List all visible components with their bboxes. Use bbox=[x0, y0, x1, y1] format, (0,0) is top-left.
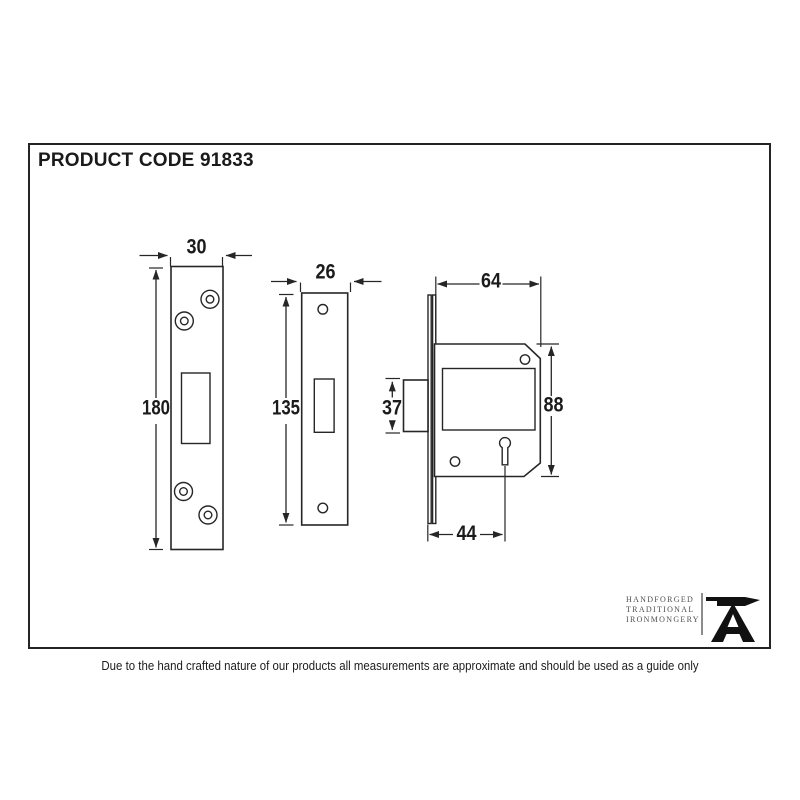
lock-body-width-dimension: 64 bbox=[436, 270, 541, 348]
brand-divider bbox=[701, 593, 703, 635]
faceplate-cutout bbox=[314, 379, 334, 432]
lock-body-inner-panel bbox=[443, 369, 536, 431]
brand-tagline-line3: IRONMONGERY bbox=[626, 615, 706, 625]
strike-plate-drawing: 30 180 bbox=[140, 236, 253, 550]
dim-label-strike-width: 30 bbox=[187, 236, 207, 259]
technical-drawing: 30 180 26 135 bbox=[0, 0, 800, 800]
deadbolt bbox=[404, 380, 429, 432]
dim-label-body-width: 64 bbox=[481, 270, 501, 293]
dim-label-strike-height: 180 bbox=[142, 397, 170, 420]
lock-case-drawing: 64 88 37 44 bbox=[382, 270, 564, 546]
strike-plate-height-dimension: 180 bbox=[142, 268, 170, 550]
strike-plate-width-dimension: 30 bbox=[140, 236, 253, 267]
disclaimer-text: Due to the hand crafted nature of our pr… bbox=[48, 658, 752, 673]
brand-tagline-line2: TRADITIONAL bbox=[626, 605, 706, 615]
dim-label-backset: 44 bbox=[457, 522, 477, 545]
dim-label-faceplate-width: 26 bbox=[316, 261, 336, 284]
product-spec-sheet: { "header": { "product_code": "PRODUCT C… bbox=[0, 0, 800, 800]
backset-dimension: 44 bbox=[428, 466, 505, 545]
anvil-icon bbox=[705, 592, 761, 642]
faceplate-drawing: 26 135 bbox=[271, 261, 382, 526]
strike-plate-cutout bbox=[182, 373, 211, 444]
deadbolt-height-dimension: 37 bbox=[382, 379, 402, 434]
faceplate-width-dimension: 26 bbox=[271, 261, 382, 293]
dim-label-faceplate-height: 135 bbox=[272, 397, 300, 420]
brand-tagline: HANDFORGED TRADITIONAL IRONMONGERY bbox=[626, 595, 706, 625]
brand-tagline-line1: HANDFORGED bbox=[626, 595, 706, 605]
faceplate-height-dimension: 135 bbox=[272, 295, 300, 526]
dim-label-bolt-height: 37 bbox=[382, 397, 402, 420]
dim-label-body-height: 88 bbox=[544, 394, 564, 417]
